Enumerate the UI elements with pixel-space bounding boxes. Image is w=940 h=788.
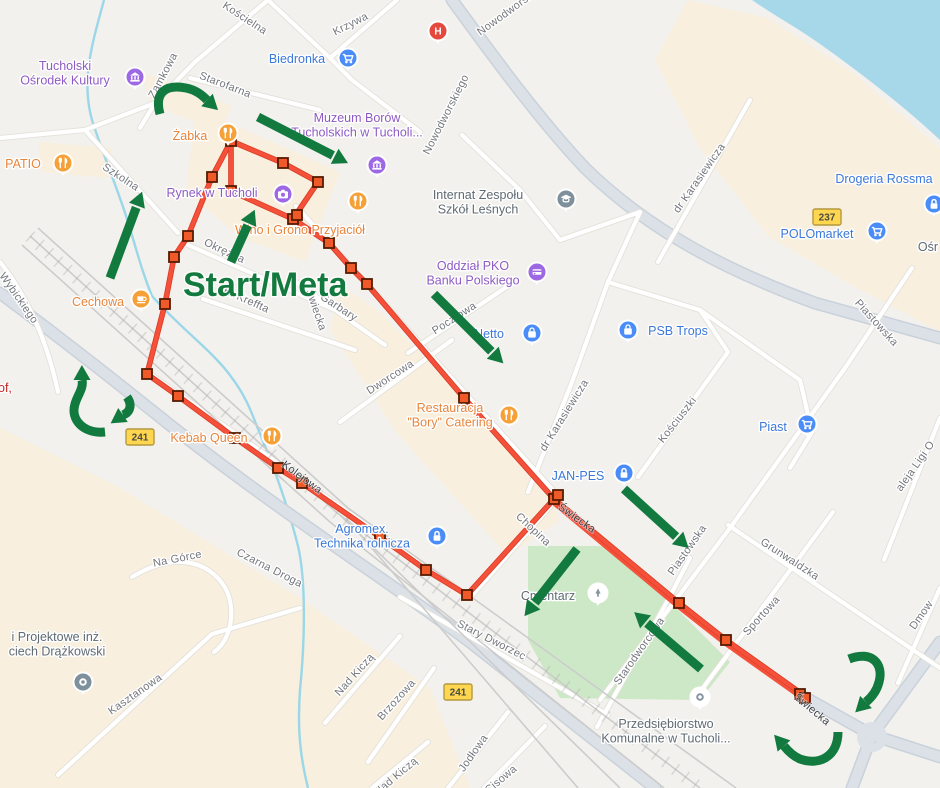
route-shield-241: 241: [444, 684, 472, 700]
route-shield-241: 241: [126, 429, 154, 445]
clipped-label-fragment: of,: [0, 381, 12, 395]
route-waypoint-square: [553, 490, 563, 500]
route-waypoint-square: [421, 565, 431, 575]
route-waypoint-square: [313, 177, 323, 187]
map-screenshot: 237241241 KościelnaKrzywaNowodworskiegoN…: [0, 0, 940, 788]
start-meta-label: Start/Meta: [183, 266, 348, 304]
poi-label[interactable]: Agromex.: [335, 522, 389, 536]
poi-label[interactable]: Biedronka: [269, 52, 325, 66]
shield-number: 241: [132, 433, 149, 444]
route-waypoint-square: [346, 263, 356, 273]
poi-label[interactable]: Internat Zespołu: [433, 188, 523, 202]
shield-number: 241: [450, 688, 467, 699]
map-canvas[interactable]: 237241241 KościelnaKrzywaNowodworskiegoN…: [0, 0, 940, 788]
poi-label[interactable]: Kebab Queen: [170, 431, 247, 445]
route-waypoint-square: [278, 158, 288, 168]
route-waypoint-square: [292, 210, 302, 220]
route-waypoint-square: [207, 172, 217, 182]
poi-label[interactable]: Technika rolnicza: [314, 537, 410, 551]
route-waypoint-square: [160, 299, 170, 309]
poi-label[interactable]: "Bory" Catering: [407, 416, 492, 430]
poi-label[interactable]: Muzeum Borów: [314, 111, 402, 125]
poi-label[interactable]: Żabka: [173, 129, 208, 143]
route-waypoint-square: [169, 252, 179, 262]
poi-label[interactable]: Ośrodek Kultury: [20, 74, 110, 88]
poi-label[interactable]: Piast: [759, 420, 787, 434]
poi-label[interactable]: Tucholski: [39, 59, 91, 73]
route-waypoint-square: [183, 231, 193, 241]
poi-label[interactable]: Ośr: [918, 240, 938, 254]
poi-label[interactable]: PATIO: [5, 157, 41, 171]
poi-label[interactable]: Rynek w Tucholi: [166, 186, 257, 200]
route-waypoint-square: [362, 279, 372, 289]
poi-label[interactable]: Cechowa: [72, 295, 124, 309]
svg-text:H: H: [434, 26, 441, 37]
poi-label[interactable]: Oddział PKO: [437, 259, 510, 273]
poi-label[interactable]: Drogeria Rossma: [835, 172, 932, 186]
route-waypoint-square: [324, 238, 334, 248]
route-annotations: Start/Meta: [183, 266, 348, 304]
route-waypoint-square: [142, 369, 152, 379]
route-waypoint-square: [462, 590, 472, 600]
poi-label[interactable]: Tucholskich w Tucholi...: [291, 126, 423, 140]
poi-label[interactable]: POLOmarket: [781, 227, 854, 241]
shield-number: 237: [819, 213, 836, 224]
route-waypoint-square: [674, 598, 684, 608]
route-waypoint-square: [721, 635, 731, 645]
poi-label[interactable]: JAN-PES: [552, 469, 605, 483]
poi-drogeria-rossmann[interactable]: Drogeria Rossma: [835, 172, 932, 186]
poi-label[interactable]: Szkół Leśnych: [438, 203, 519, 217]
poi-label[interactable]: Komunalne w Tucholi...: [601, 732, 730, 746]
poi-label[interactable]: ciech Drążkowski: [9, 645, 106, 659]
poi-osr-fragment[interactable]: Ośr: [918, 240, 938, 254]
poi-label[interactable]: PSB Trops: [648, 324, 708, 338]
route-shield-237: 237: [813, 209, 841, 225]
route-waypoint-square: [173, 391, 183, 401]
poi-label[interactable]: Restauracja: [417, 401, 484, 415]
poi-label[interactable]: Banku Polskiego: [426, 274, 519, 288]
poi-label[interactable]: Przedsiębiorstwo: [618, 717, 713, 731]
poi-label[interactable]: i Projektowe inż.: [11, 630, 102, 644]
